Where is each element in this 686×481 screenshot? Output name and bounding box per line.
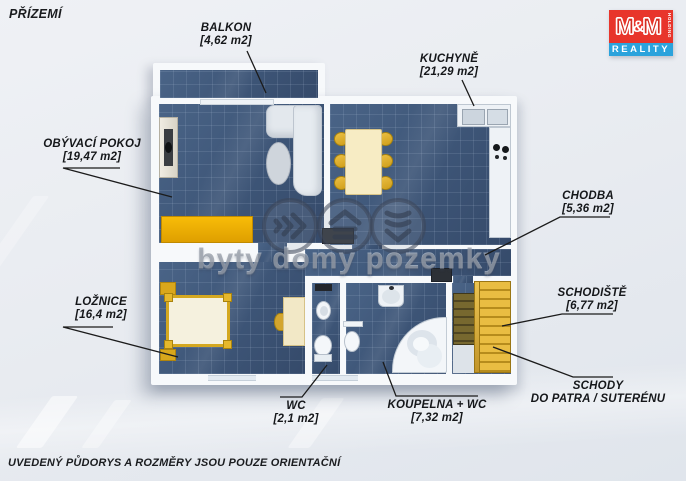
balcony-door [200, 99, 274, 105]
stairs-up-flight [479, 281, 511, 373]
room-label-obyvaci-pokoj: OBÝVACÍ POKOJ [19,47 m2] [43, 138, 141, 164]
sink-basin [487, 109, 508, 125]
toilet-bowl [314, 335, 332, 356]
room-label-koupelna-wc: KOUPELNA + WC [7,32 m2] [388, 399, 487, 425]
nightstand [160, 349, 176, 361]
faucet [389, 286, 394, 290]
desk [283, 297, 305, 346]
basin-bowl [320, 306, 328, 316]
mm-reality-logo: M&M HOLDING REALITY [609, 10, 673, 56]
sink-basin [462, 109, 485, 125]
kitchen-counter-top [457, 104, 511, 127]
logo-red-box: M&M HOLDING [609, 10, 673, 43]
logo-mm-text: M&M [609, 11, 666, 42]
room-label-schodiste: SCHODIŠTĚ [6,77 m2] [558, 287, 627, 313]
background-streak [16, 396, 78, 448]
bed-knob [223, 340, 232, 349]
doorway-mat [322, 228, 354, 244]
tv-speaker [165, 142, 172, 153]
floorplan-image: PŘÍZEMÍ UVEDENÝ PŮDORYS A ROZMĚRY JSOU P… [0, 0, 686, 481]
basin-bowl [382, 289, 400, 304]
page-title: PŘÍZEMÍ [9, 7, 62, 21]
bathtub-seat [413, 337, 429, 351]
wc-shelf [315, 284, 332, 291]
room-label-schody: SCHODY DO PATRA / SUTERÉNU [531, 380, 666, 406]
background-streak [81, 400, 132, 448]
room-label-loznice: LOŽNICE [16,4 m2] [75, 296, 127, 322]
window [312, 375, 358, 381]
tv-cabinet [159, 117, 178, 178]
bed-knob [223, 293, 232, 302]
room-label-kuchyne: KUCHYNĚ [21,29 m2] [420, 53, 478, 79]
bedroom-door-passage [258, 243, 287, 264]
bed-knob [164, 340, 173, 349]
stove-burner [495, 155, 499, 159]
doorway-mat [431, 268, 452, 282]
logo-reality-text: REALITY [609, 43, 673, 56]
stove-burner [503, 156, 507, 160]
kitchen-counter-right [489, 127, 511, 238]
hallway-floor [305, 249, 511, 276]
bed [166, 295, 230, 347]
disclaimer-text: UVEDENÝ PŮDORYS A ROZMĚRY JSOU POUZE ORI… [8, 457, 340, 469]
room-label-balkon: BALKON [4,62 m2] [200, 22, 252, 48]
toilet-tank [314, 354, 332, 362]
dining-table [345, 129, 382, 195]
room-label-chodba: CHODBA [5,36 m2] [562, 190, 614, 216]
sideboard [161, 216, 253, 243]
bathroom-washbasin-unit [378, 285, 404, 307]
room-label-wc: WC [2,1 m2] [273, 400, 318, 426]
corner-sofa-side [293, 105, 322, 196]
bathroom-shelf [343, 321, 363, 327]
background-streak [0, 196, 49, 274]
stove-burner [502, 146, 509, 153]
bed-knob [164, 293, 173, 302]
stove-burner [493, 144, 500, 151]
bathroom-toilet [344, 331, 360, 352]
stair-railing [474, 281, 480, 373]
coffee-table [266, 142, 291, 185]
balcony-floor [160, 70, 318, 98]
window [208, 375, 256, 381]
logo-holding-text: HOLDING [667, 13, 672, 38]
wc-washbasin [316, 301, 331, 320]
